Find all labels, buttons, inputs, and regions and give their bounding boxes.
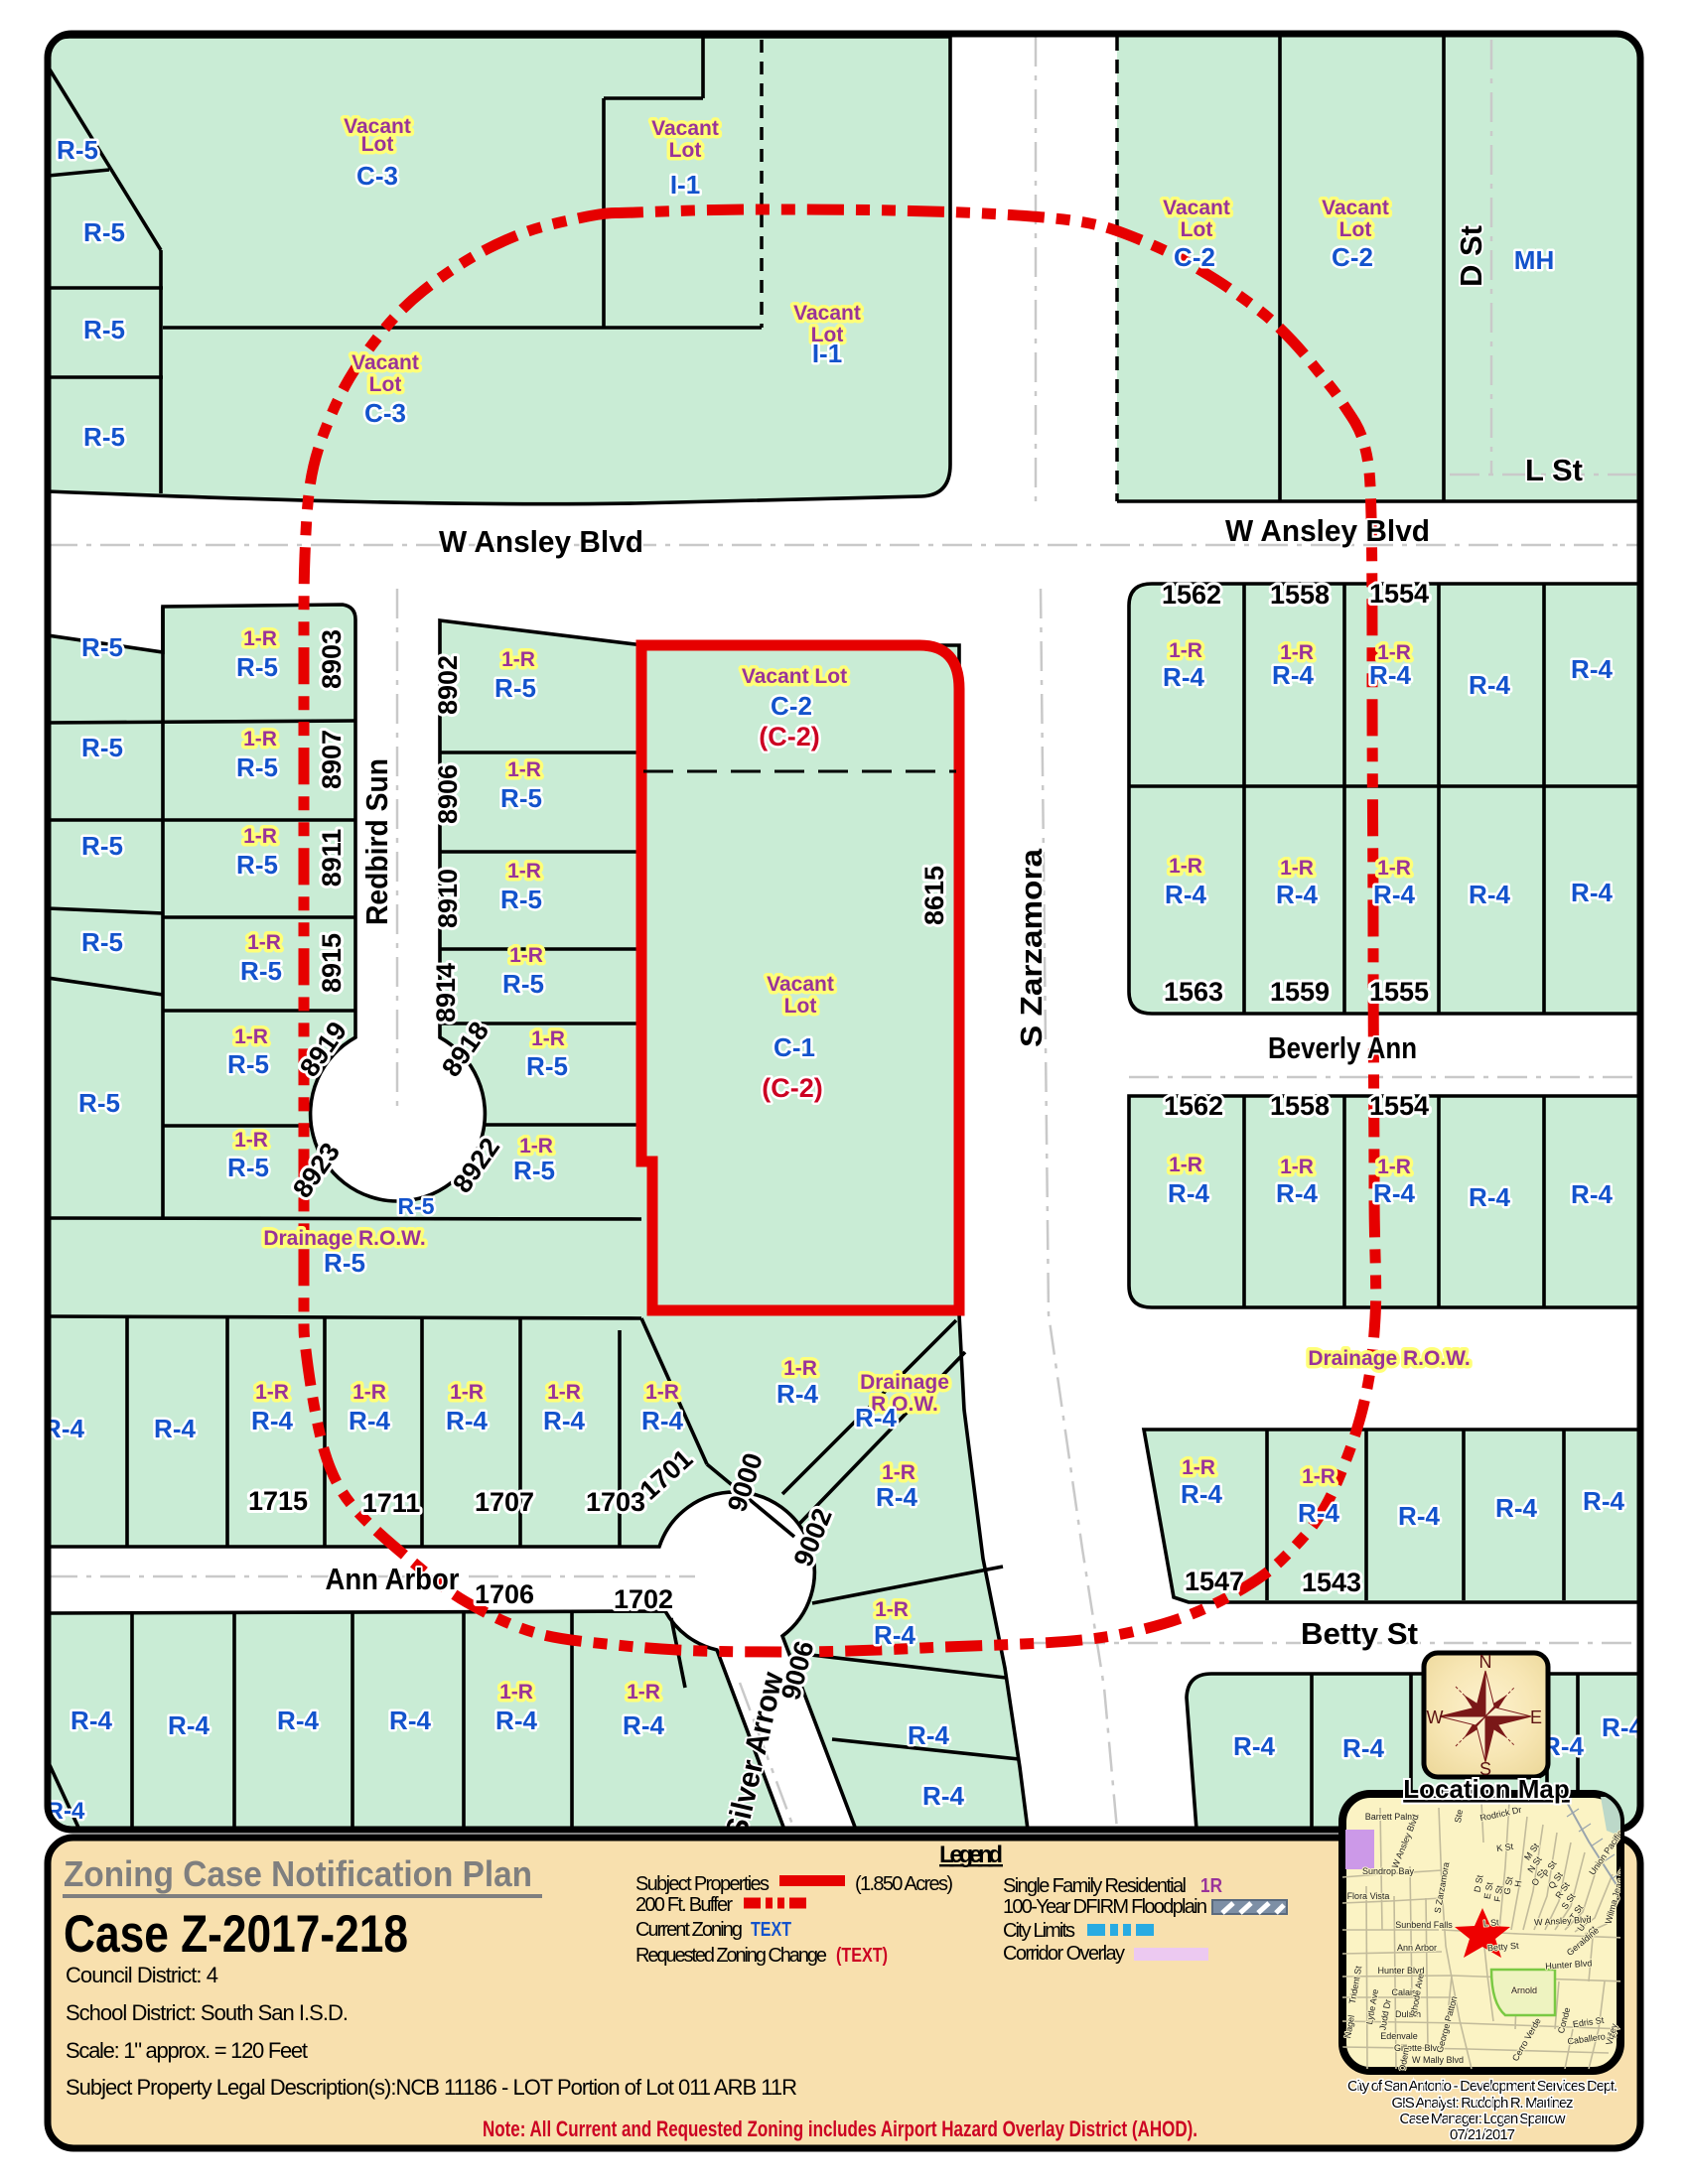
svg-text:R-4: R-4 [1233, 1731, 1275, 1761]
svg-text:1-R: 1-R [352, 1381, 386, 1404]
svg-text:R-4: R-4 [1168, 1178, 1209, 1208]
svg-text:C-2: C-2 [771, 691, 812, 721]
svg-text:8903: 8903 [317, 629, 347, 689]
svg-text:Drainage R.O.W.: Drainage R.O.W. [1308, 1347, 1470, 1370]
svg-text:L St: L St [1525, 453, 1583, 487]
svg-text:R-4: R-4 [1469, 1182, 1510, 1212]
svg-text:1-R: 1-R [1377, 857, 1411, 880]
svg-text:1-R: 1-R [234, 1025, 268, 1048]
svg-text:R-4: R-4 [908, 1720, 949, 1750]
svg-text:1554: 1554 [1369, 1091, 1429, 1121]
svg-text:Vacant: Vacant [651, 117, 719, 140]
svg-text:Lot: Lot [369, 373, 402, 396]
svg-text:Sunbend Falls: Sunbend Falls [1395, 1920, 1453, 1930]
svg-text:Note: All Current and Requeste: Note: All Current and Requested Zoning i… [483, 2116, 1197, 2141]
svg-text:R-4: R-4 [154, 1414, 196, 1443]
svg-text:1-R: 1-R [243, 825, 277, 848]
svg-text:R-4: R-4 [1165, 880, 1206, 909]
svg-text:1-R: 1-R [243, 627, 277, 650]
svg-text:1706: 1706 [475, 1579, 534, 1609]
svg-text:R-5: R-5 [500, 885, 542, 914]
svg-text:R-5: R-5 [81, 927, 123, 957]
svg-text:Case Manager: Logan Sparrow: Case Manager: Logan Sparrow [1400, 2111, 1566, 2127]
svg-text:Requested Zoning Change: Requested Zoning Change [635, 1945, 827, 1967]
svg-text:City Limits: City Limits [1003, 1920, 1075, 1942]
svg-text:1559: 1559 [1270, 977, 1330, 1007]
svg-text:200 Ft. Buffer: 200 Ft. Buffer [635, 1894, 733, 1916]
svg-text:1-R: 1-R [627, 1681, 660, 1704]
svg-text:1-R: 1-R [509, 944, 543, 967]
svg-text:R-4: R-4 [1369, 660, 1411, 690]
svg-text:MH: MH [1514, 245, 1554, 275]
svg-text:R-4: R-4 [70, 1706, 112, 1735]
svg-text:R-5: R-5 [502, 969, 544, 999]
svg-text:Lot: Lot [784, 995, 817, 1018]
svg-text:Case Z-2017-218: Case Z-2017-218 [64, 1905, 408, 1964]
svg-text:1-R: 1-R [1302, 1465, 1336, 1488]
svg-text:W Ansley Blvd: W Ansley Blvd [1225, 513, 1430, 548]
svg-text:1-R: 1-R [1169, 639, 1202, 662]
svg-text:Betty St: Betty St [1301, 1616, 1418, 1651]
svg-text:Subject Properties: Subject Properties [635, 1873, 770, 1895]
svg-text:School District: South San I.: School District: South San I.S.D. [66, 2000, 349, 2025]
svg-text:1R: 1R [1200, 1875, 1222, 1897]
svg-text:1-R: 1-R [501, 648, 535, 671]
svg-text:Ann Arbor: Ann Arbor [326, 1562, 460, 1596]
svg-text:8907: 8907 [317, 730, 347, 789]
svg-text:R-4: R-4 [1469, 670, 1510, 700]
svg-text:1-R: 1-R [875, 1598, 909, 1621]
svg-text:R-4: R-4 [1276, 1178, 1318, 1208]
svg-text:D St: D St [1454, 225, 1488, 287]
svg-text:1-R: 1-R [247, 931, 281, 954]
svg-text:Edenvale: Edenvale [1380, 2031, 1418, 2041]
svg-text:R-5: R-5 [397, 1193, 434, 1219]
svg-text:R-5: R-5 [236, 850, 278, 880]
svg-text:Subject Property Legal Descrip: Subject Property Legal Description(s):NC… [66, 2075, 797, 2100]
svg-text:R-5: R-5 [83, 422, 125, 452]
svg-text:R-5: R-5 [324, 1248, 365, 1278]
svg-text:1543: 1543 [1302, 1568, 1361, 1597]
svg-text:Drainage R.O.W.: Drainage R.O.W. [263, 1227, 425, 1250]
svg-text:R-4: R-4 [1373, 1178, 1415, 1208]
svg-text:1563: 1563 [1164, 977, 1223, 1007]
svg-text:E: E [1530, 1707, 1542, 1727]
svg-text:1547: 1547 [1185, 1567, 1244, 1596]
svg-text:Vacant Lot: Vacant Lot [742, 665, 847, 688]
svg-text:R-4: R-4 [168, 1710, 210, 1740]
svg-text:R-5: R-5 [240, 956, 282, 986]
svg-text:R-4: R-4 [874, 1620, 915, 1650]
svg-text:1-R: 1-R [507, 758, 541, 781]
svg-text:8906: 8906 [433, 764, 463, 824]
svg-text:R-4: R-4 [446, 1406, 488, 1435]
svg-text:Lot: Lot [361, 133, 394, 156]
svg-text:1707: 1707 [475, 1487, 534, 1517]
svg-text:1703: 1703 [586, 1487, 645, 1517]
svg-text:R-4: R-4 [855, 1403, 897, 1433]
svg-text:Sundrop Bay: Sundrop Bay [1362, 1866, 1415, 1876]
svg-text:R-4: R-4 [277, 1706, 319, 1735]
svg-text:1-R: 1-R [1169, 855, 1202, 878]
svg-text:Zoning Case Notification Plan: Zoning Case Notification Plan [64, 1853, 532, 1894]
svg-text:1-R: 1-R [882, 1461, 915, 1484]
svg-text:Flora Vista: Flora Vista [1347, 1891, 1390, 1901]
svg-text:100-Year DFIRM Floodplain: 100-Year DFIRM Floodplain [1003, 1896, 1207, 1918]
svg-text:8914: 8914 [431, 963, 461, 1023]
svg-text:1-R: 1-R [450, 1381, 484, 1404]
svg-text:1-R: 1-R [234, 1129, 268, 1152]
svg-text:R-4: R-4 [349, 1406, 390, 1435]
svg-text:R-5: R-5 [57, 135, 98, 165]
svg-text:C-2: C-2 [1174, 242, 1215, 272]
svg-text:R-5: R-5 [494, 673, 536, 703]
svg-text:R-4: R-4 [1342, 1733, 1384, 1763]
svg-text:1702: 1702 [614, 1584, 673, 1614]
svg-text:Legend: Legend [939, 1842, 1003, 1868]
svg-text:R-5: R-5 [83, 217, 125, 247]
svg-text:N: N [1479, 1652, 1492, 1672]
svg-text:R-4: R-4 [1373, 880, 1415, 909]
svg-text:R-4: R-4 [1571, 878, 1613, 907]
svg-text:R-4: R-4 [1495, 1493, 1537, 1523]
svg-text:R-4: R-4 [1298, 1498, 1339, 1528]
svg-text:1-R: 1-R [531, 1027, 565, 1050]
svg-text:1-R: 1-R [1280, 1156, 1314, 1178]
svg-text:Single Family Residential: Single Family Residential [1003, 1875, 1187, 1897]
svg-text:R-4: R-4 [922, 1781, 964, 1811]
svg-text:R-4: R-4 [389, 1706, 431, 1735]
svg-text:R-4: R-4 [543, 1406, 585, 1435]
svg-text:1558: 1558 [1270, 580, 1330, 610]
svg-text:R-5: R-5 [500, 783, 542, 813]
svg-text:R-4: R-4 [495, 1706, 537, 1735]
svg-text:1555: 1555 [1369, 977, 1429, 1007]
svg-text:8910: 8910 [433, 869, 463, 928]
svg-text:R-5: R-5 [236, 752, 278, 782]
svg-text:8911: 8911 [317, 829, 347, 887]
svg-text:(TEXT): (TEXT) [836, 1945, 888, 1967]
svg-text:City of San Antonio - Developm: City of San Antonio - Development Servic… [1347, 2078, 1618, 2095]
svg-text:Vacant: Vacant [352, 351, 419, 374]
svg-text:R-4: R-4 [251, 1406, 293, 1435]
svg-text:Vacant: Vacant [767, 973, 834, 996]
svg-text:(1.850 Acres): (1.850 Acres) [855, 1873, 953, 1895]
svg-text:R-5: R-5 [227, 1049, 269, 1079]
svg-text:GIS Analyst: Rudolph R. Martin: GIS Analyst: Rudolph R. Martinez [1392, 2095, 1574, 2112]
svg-text:R-4: R-4 [1469, 880, 1510, 909]
svg-text:1-R: 1-R [547, 1381, 581, 1404]
svg-text:S Zarzamora: S Zarzamora [1014, 848, 1049, 1047]
svg-text:Ann Arbor: Ann Arbor [1397, 1943, 1437, 1953]
svg-text:1-R: 1-R [1377, 1156, 1411, 1178]
svg-text:Current Zoning: Current Zoning [635, 1919, 743, 1941]
svg-text:Corridor Overlay: Corridor Overlay [1003, 1943, 1125, 1965]
svg-text:R-4: R-4 [876, 1482, 917, 1512]
svg-text:R-4: R-4 [1181, 1479, 1222, 1509]
svg-text:R-4: R-4 [1571, 1179, 1613, 1209]
svg-text:L St: L St [1482, 1917, 1499, 1928]
svg-text:1715: 1715 [248, 1486, 308, 1516]
svg-text:R-4: R-4 [776, 1379, 818, 1409]
svg-text:Lot: Lot [1181, 218, 1213, 241]
svg-text:8915: 8915 [317, 933, 347, 993]
svg-text:Lot: Lot [1339, 218, 1372, 241]
svg-text:(C-2): (C-2) [759, 722, 820, 751]
svg-text:1-R: 1-R [783, 1357, 817, 1380]
svg-text:07/21/2017: 07/21/2017 [1450, 2126, 1515, 2143]
svg-text:1-R: 1-R [1182, 1456, 1215, 1479]
svg-text:C-3: C-3 [364, 398, 406, 428]
svg-text:1-R: 1-R [519, 1135, 553, 1158]
svg-text:C-3: C-3 [356, 161, 398, 191]
svg-text:R-5: R-5 [526, 1051, 568, 1081]
svg-text:1-R: 1-R [255, 1381, 289, 1404]
svg-text:1554: 1554 [1369, 579, 1429, 609]
svg-text:1-R: 1-R [1280, 857, 1314, 880]
svg-text:Council District: 4: Council District: 4 [66, 1963, 218, 1987]
svg-text:1711: 1711 [362, 1488, 421, 1518]
svg-text:W Mally Blvd: W Mally Blvd [1412, 2055, 1464, 2065]
svg-text:R-4: R-4 [1272, 660, 1314, 690]
svg-text:Scale: 1" approx. = 120 Feet: Scale: 1" approx. = 120 Feet [66, 2038, 308, 2063]
svg-text:Vacant: Vacant [1322, 197, 1389, 219]
svg-text:W: W [1427, 1707, 1444, 1727]
svg-text:R-5: R-5 [81, 733, 123, 762]
svg-text:1-R: 1-R [645, 1381, 679, 1404]
svg-text:1-R: 1-R [507, 860, 541, 883]
svg-text:R-5: R-5 [81, 831, 123, 861]
svg-text:R-5: R-5 [227, 1153, 269, 1182]
svg-text:1558: 1558 [1270, 1091, 1330, 1121]
svg-text:R-4: R-4 [1398, 1501, 1440, 1531]
svg-text:Lot: Lot [669, 139, 702, 162]
svg-text:R-4: R-4 [1276, 880, 1318, 909]
svg-text:(C-2): (C-2) [762, 1073, 823, 1103]
svg-text:R-5: R-5 [81, 632, 123, 662]
svg-text:8615: 8615 [919, 866, 949, 925]
svg-text:R-4: R-4 [623, 1710, 664, 1740]
svg-text:Drainage: Drainage [860, 1371, 949, 1394]
svg-text:Beverly Ann: Beverly Ann [1268, 1030, 1417, 1065]
svg-text:1562: 1562 [1162, 580, 1221, 610]
svg-text:R-5: R-5 [83, 315, 125, 344]
svg-text:1-R: 1-R [499, 1681, 533, 1704]
svg-text:R-4: R-4 [1571, 654, 1613, 684]
svg-text:TEXT: TEXT [751, 1919, 791, 1941]
svg-text:Vacant: Vacant [793, 302, 861, 325]
svg-text:1562: 1562 [1164, 1091, 1223, 1121]
svg-text:Redbird Sun: Redbird Sun [359, 758, 394, 925]
svg-text:R-5: R-5 [513, 1156, 555, 1185]
svg-text:R-4: R-4 [641, 1406, 683, 1435]
svg-text:I-1: I-1 [812, 339, 842, 368]
svg-text:R-5: R-5 [236, 652, 278, 682]
svg-text:C-2: C-2 [1332, 242, 1373, 272]
svg-text:1-R: 1-R [1169, 1154, 1202, 1176]
svg-text:R-4: R-4 [1583, 1486, 1624, 1516]
svg-text:R-4: R-4 [1163, 662, 1204, 692]
svg-text:C-1: C-1 [774, 1032, 815, 1062]
svg-text:R-5: R-5 [78, 1088, 120, 1118]
svg-text:Location Map: Location Map [1403, 1774, 1570, 1804]
svg-text:W Ansley Blvd: W Ansley Blvd [439, 524, 643, 559]
svg-text:Arnold: Arnold [1511, 1985, 1537, 1995]
svg-text:Vacant: Vacant [1163, 197, 1230, 219]
svg-text:I-1: I-1 [670, 170, 700, 200]
svg-text:1-R: 1-R [243, 728, 277, 751]
svg-text:8902: 8902 [433, 655, 463, 715]
